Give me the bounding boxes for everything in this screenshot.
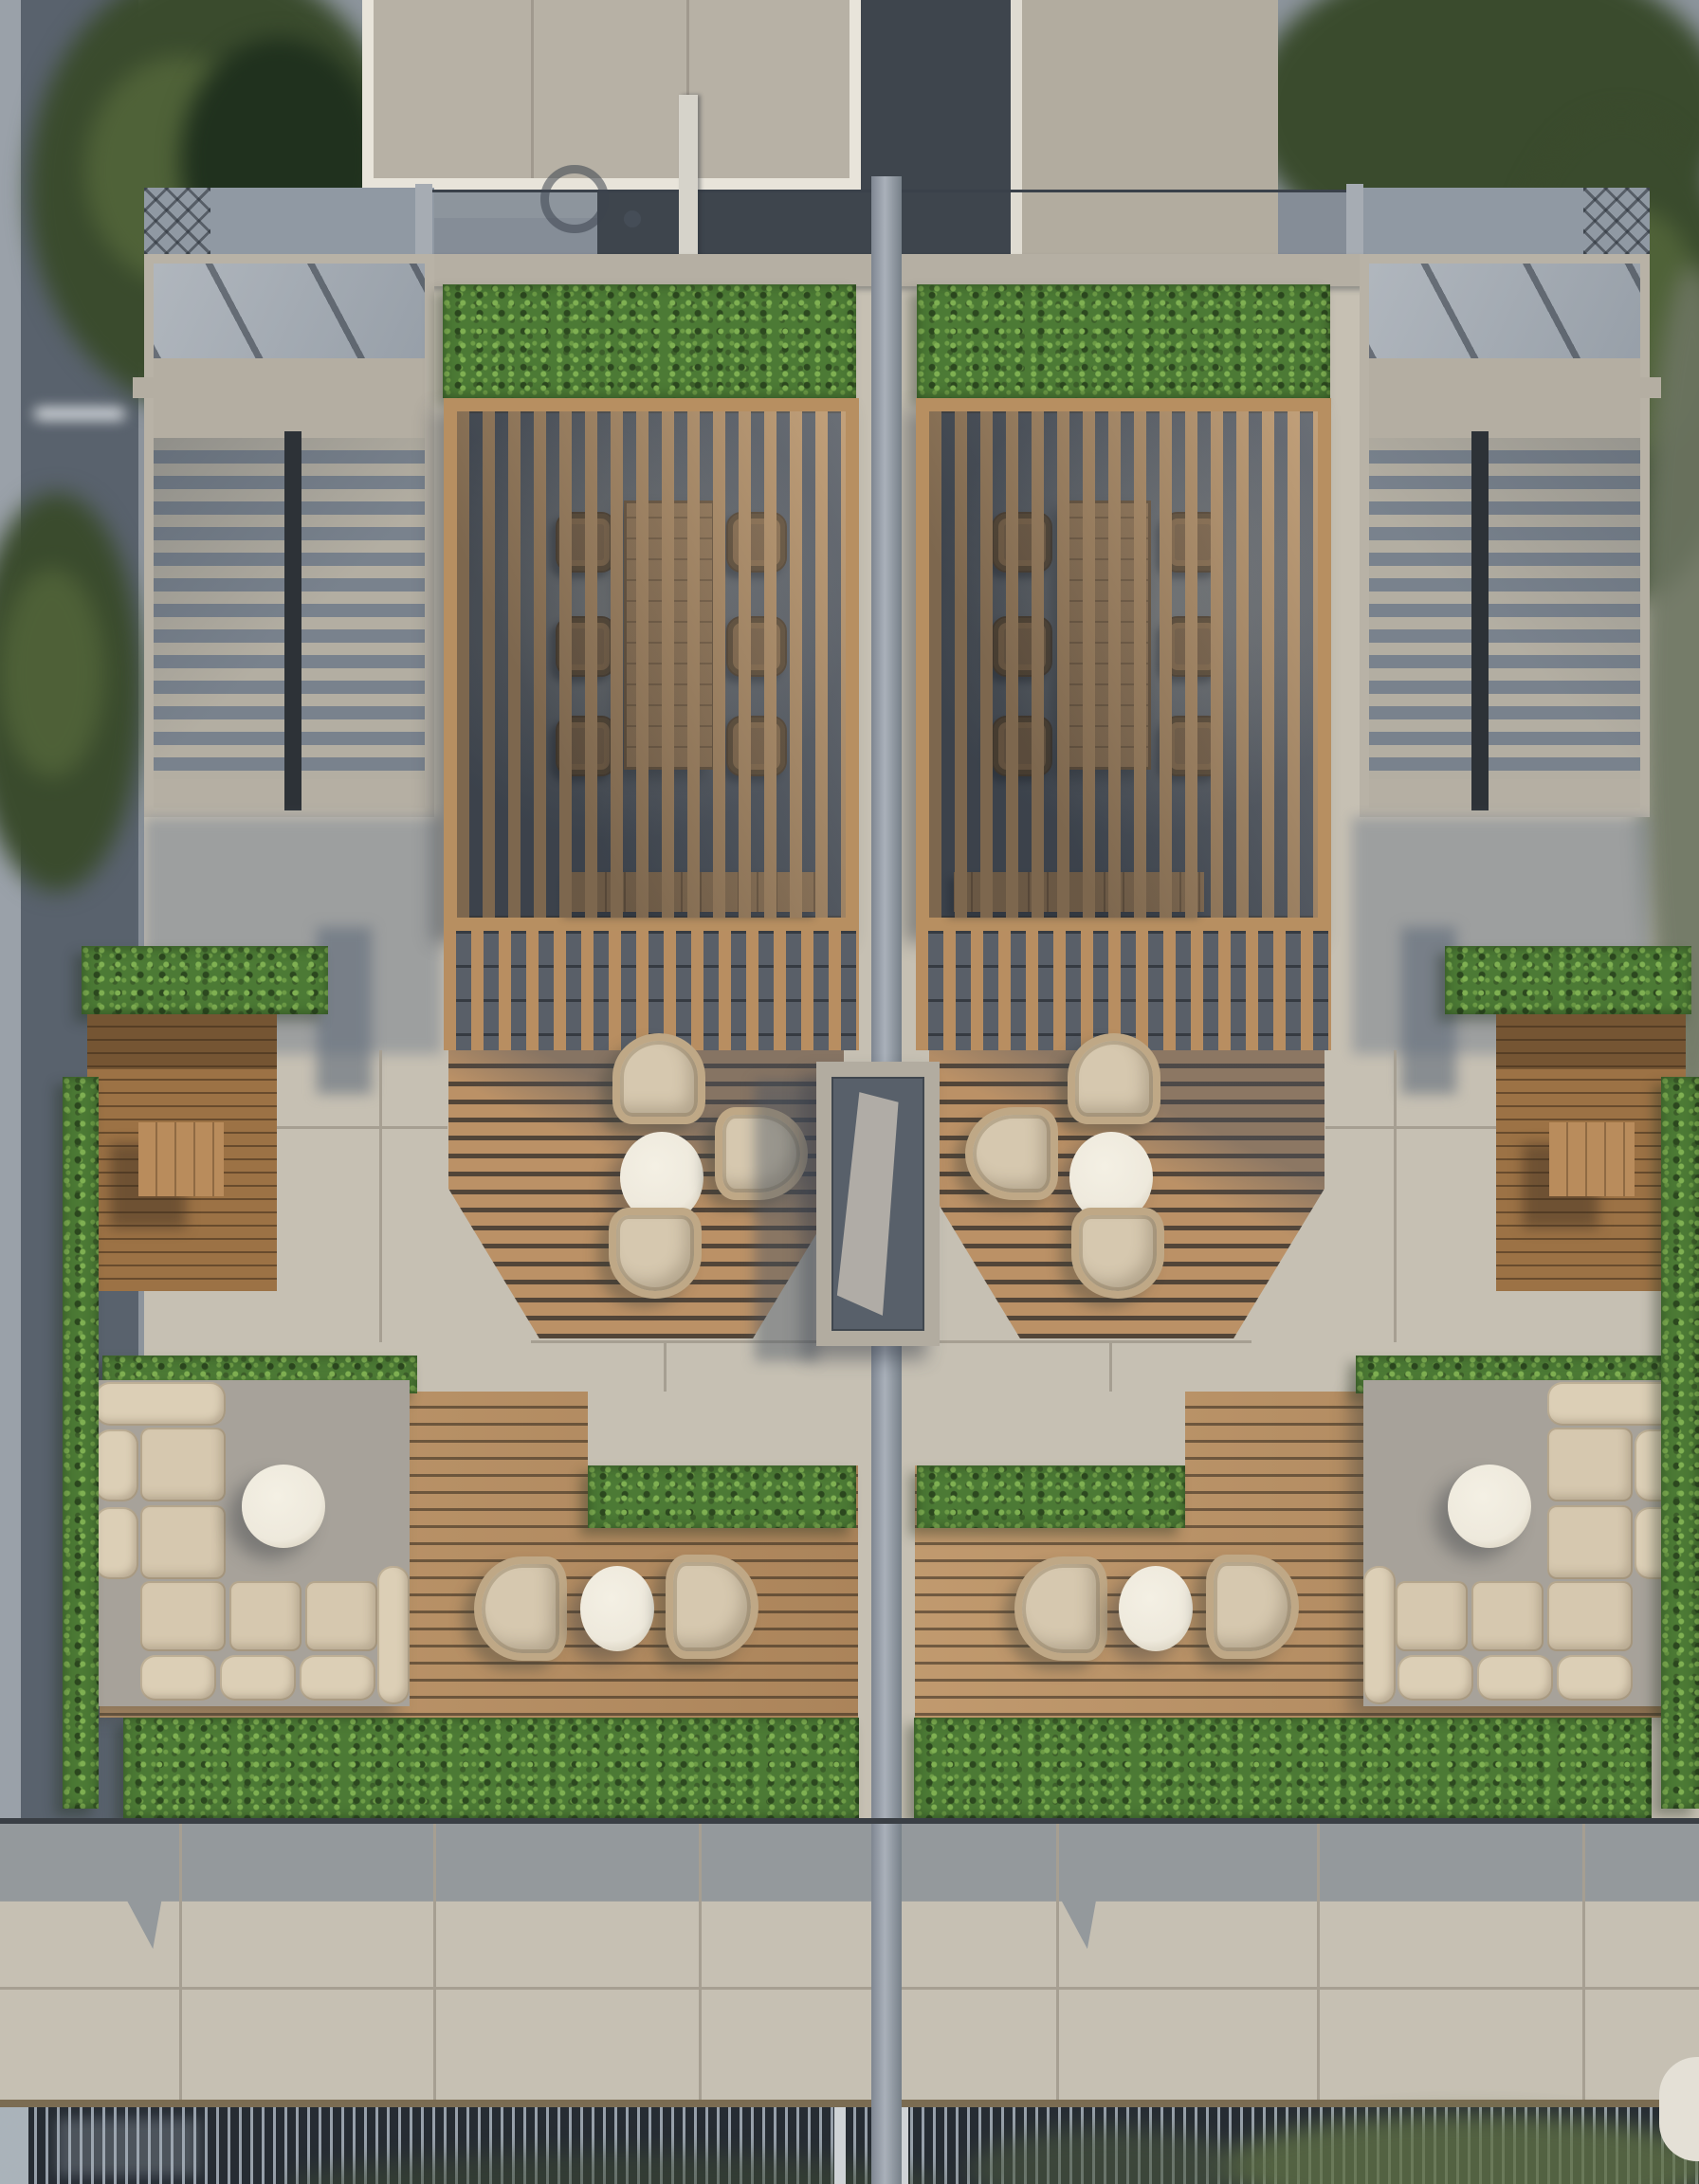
sofa-back-bolster xyxy=(1477,1655,1553,1701)
band-joint xyxy=(699,1824,702,2100)
sidewalk-strip xyxy=(0,0,21,1818)
planter-hedge-top-right xyxy=(1445,946,1691,1014)
lounge-pod xyxy=(1071,1208,1164,1299)
neighbor-light-wall xyxy=(1011,0,1278,273)
louver-shade-right xyxy=(1369,438,1640,779)
hedge-inner-left xyxy=(588,1465,856,1528)
paving-joint xyxy=(664,1340,667,1392)
sofa-armrest xyxy=(377,1566,410,1704)
sofa-seat xyxy=(305,1581,377,1651)
hedge-bottom-left-unit xyxy=(123,1718,859,1818)
concrete-band-left-notch xyxy=(133,377,157,398)
louver-rail-right xyxy=(1471,431,1489,810)
neighbor-roof-slab xyxy=(362,0,861,190)
lounge-pod xyxy=(612,1033,705,1124)
privacy-screen-zone-left xyxy=(444,931,859,1050)
planter-bench-left xyxy=(138,1122,224,1196)
band-joint xyxy=(433,1824,436,2100)
glass-reflection xyxy=(57,2119,199,2175)
band-joint xyxy=(1582,1824,1585,2100)
concrete-band-right-notch xyxy=(1636,377,1661,398)
planter-deck-left-shadowband xyxy=(87,1014,277,1069)
planter-hedge-top-left xyxy=(82,946,328,1014)
sofa-seat xyxy=(229,1581,301,1651)
hedge-bottom-right-unit xyxy=(914,1718,1652,1818)
band-joint xyxy=(1056,1824,1059,2100)
sofa-armrest xyxy=(95,1382,226,1426)
band-joint-horizontal xyxy=(0,1987,1699,1990)
sofa-armrest xyxy=(1363,1566,1396,1704)
roof-slab-joint xyxy=(531,0,534,178)
pergola-right-shade xyxy=(929,411,1318,918)
lattice-screen-left xyxy=(144,188,210,254)
hedge-top-left-unit xyxy=(443,284,856,398)
glass-reflection-left xyxy=(0,2107,28,2184)
central-column-fence-segment xyxy=(871,2100,902,2184)
skylight-right xyxy=(1369,264,1640,358)
tree-mid-left-highlight xyxy=(0,569,104,777)
round-side-table xyxy=(580,1566,654,1651)
central-column-band-segment xyxy=(871,1824,902,2100)
lattice-screen-right xyxy=(1583,188,1650,254)
sofa-seat-corner xyxy=(140,1581,226,1651)
paving-joint xyxy=(379,1050,382,1342)
paving-notch-right xyxy=(915,1392,1185,1465)
wicker-chair xyxy=(1014,1556,1107,1661)
lounge-pod xyxy=(1068,1033,1160,1124)
sofa-back-bolster xyxy=(95,1429,138,1501)
neighbor-wall-edge xyxy=(1011,0,1022,273)
round-feature-dot xyxy=(624,210,641,227)
band-joint xyxy=(179,1824,182,2100)
sofa-seat xyxy=(140,1505,226,1579)
balustrade-post-left xyxy=(415,184,432,258)
sofa-seat-corner xyxy=(1547,1581,1633,1651)
hedge-top-right-unit xyxy=(917,284,1330,398)
streetlight-arm xyxy=(34,408,125,420)
paving-joint xyxy=(1394,1050,1397,1342)
concrete-band-right xyxy=(1369,358,1640,438)
rooftop-terrace-render xyxy=(0,0,1699,2184)
sofa-back-bolster xyxy=(1398,1655,1473,1701)
wicker-chair xyxy=(474,1556,567,1661)
sofa-seat xyxy=(1471,1581,1544,1651)
sofa-seat xyxy=(1547,1505,1633,1579)
planter-bench-right xyxy=(1549,1122,1635,1196)
hedge-left-column xyxy=(63,1077,99,1809)
sofa-seat xyxy=(1396,1581,1468,1651)
round-coffee-table xyxy=(1448,1465,1531,1548)
wicker-chair xyxy=(666,1555,758,1659)
lounge-pod xyxy=(609,1208,702,1299)
sofa-seat xyxy=(1547,1428,1633,1501)
louver-rail-left xyxy=(284,431,301,810)
concrete-band-left xyxy=(154,358,425,438)
skylight-left xyxy=(154,264,425,358)
paving-joint xyxy=(1109,1340,1112,1392)
lounge-pod xyxy=(965,1107,1058,1200)
sofa-back-bolster xyxy=(95,1507,138,1579)
planter-box-shadow xyxy=(755,1081,817,1361)
hedge-right-column xyxy=(1661,1077,1699,1809)
sofa-seat xyxy=(140,1428,226,1501)
sofa-back-bolster xyxy=(300,1655,375,1701)
privacy-screen-zone-right xyxy=(916,931,1331,1050)
planter-deck-right-shadowband xyxy=(1496,1014,1686,1069)
round-side-table xyxy=(1119,1566,1193,1651)
vent-pipe xyxy=(679,95,698,258)
pergola-left-shade xyxy=(457,411,846,918)
fence-top-rail xyxy=(0,2100,1699,2107)
sofa-armrest xyxy=(1547,1382,1678,1426)
sofa-back-bolster xyxy=(220,1655,296,1701)
round-feature-mark xyxy=(540,165,609,233)
hedge-inner-right xyxy=(917,1465,1185,1528)
round-coffee-table xyxy=(242,1465,325,1548)
balustrade-post-right xyxy=(1346,184,1363,258)
fence-post xyxy=(834,2107,846,2184)
paving-notch-left xyxy=(588,1392,858,1465)
wicker-chair xyxy=(1206,1555,1299,1659)
band-joint xyxy=(1317,1824,1320,2100)
sofa-back-bolster xyxy=(1557,1655,1633,1701)
sofa-back-bolster xyxy=(140,1655,216,1701)
